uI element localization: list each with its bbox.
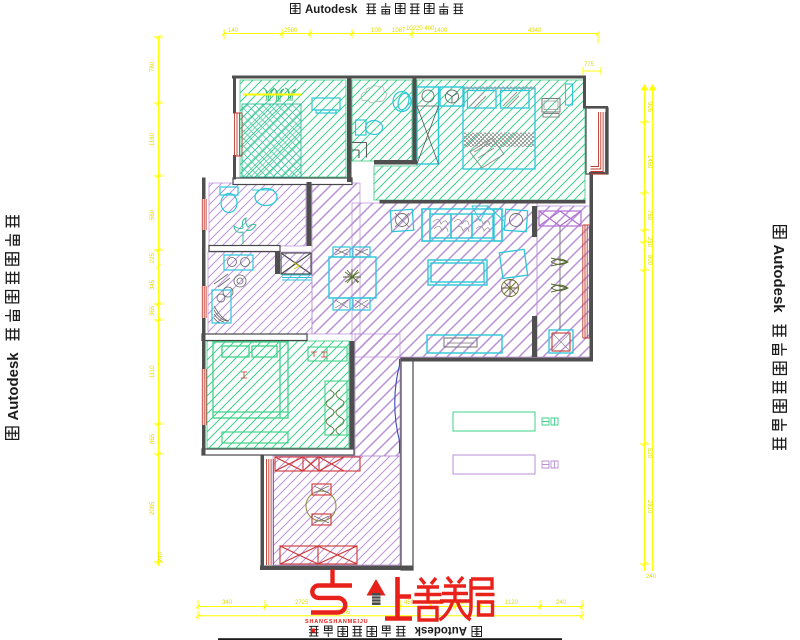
svg-text:750: 750 (646, 210, 652, 221)
svg-text:1400: 1400 (434, 28, 448, 34)
svg-text:865: 865 (150, 433, 156, 444)
svg-text:1180: 1180 (150, 132, 156, 146)
svg-text:SHANGSHANMEIJU: SHANGSHANMEIJU (305, 619, 368, 625)
svg-text:560: 560 (150, 209, 156, 220)
svg-text:4340: 4340 (528, 28, 542, 34)
svg-text:800: 800 (646, 255, 652, 266)
svg-text:100: 100 (371, 28, 382, 34)
svg-text:1087: 1087 (392, 28, 406, 34)
svg-text:140: 140 (228, 28, 239, 34)
svg-text:2810: 2810 (646, 500, 652, 514)
svg-text:240: 240 (158, 551, 164, 562)
svg-text:780: 780 (150, 61, 156, 72)
svg-text:240: 240 (646, 574, 657, 580)
svg-text:1120: 1120 (505, 600, 519, 606)
svg-text:2725: 2725 (295, 600, 309, 606)
svg-text:775: 775 (584, 62, 595, 68)
svg-text:2085: 2085 (150, 501, 156, 515)
svg-text:905: 905 (646, 102, 652, 113)
svg-text:225: 225 (150, 252, 156, 263)
svg-text:345: 345 (150, 279, 156, 290)
svg-text:250: 250 (646, 237, 652, 248)
svg-text:1110: 1110 (150, 365, 156, 378)
svg-text:520: 520 (646, 448, 652, 459)
svg-text:340: 340 (222, 600, 233, 606)
svg-text:10220 400: 10220 400 (406, 26, 435, 32)
svg-text:1450: 1450 (646, 155, 652, 169)
svg-text:365: 365 (150, 305, 156, 316)
svg-text:240: 240 (556, 600, 567, 606)
svg-text:Autodesk: Autodesk (305, 4, 358, 16)
svg-text:2580: 2580 (284, 28, 298, 34)
